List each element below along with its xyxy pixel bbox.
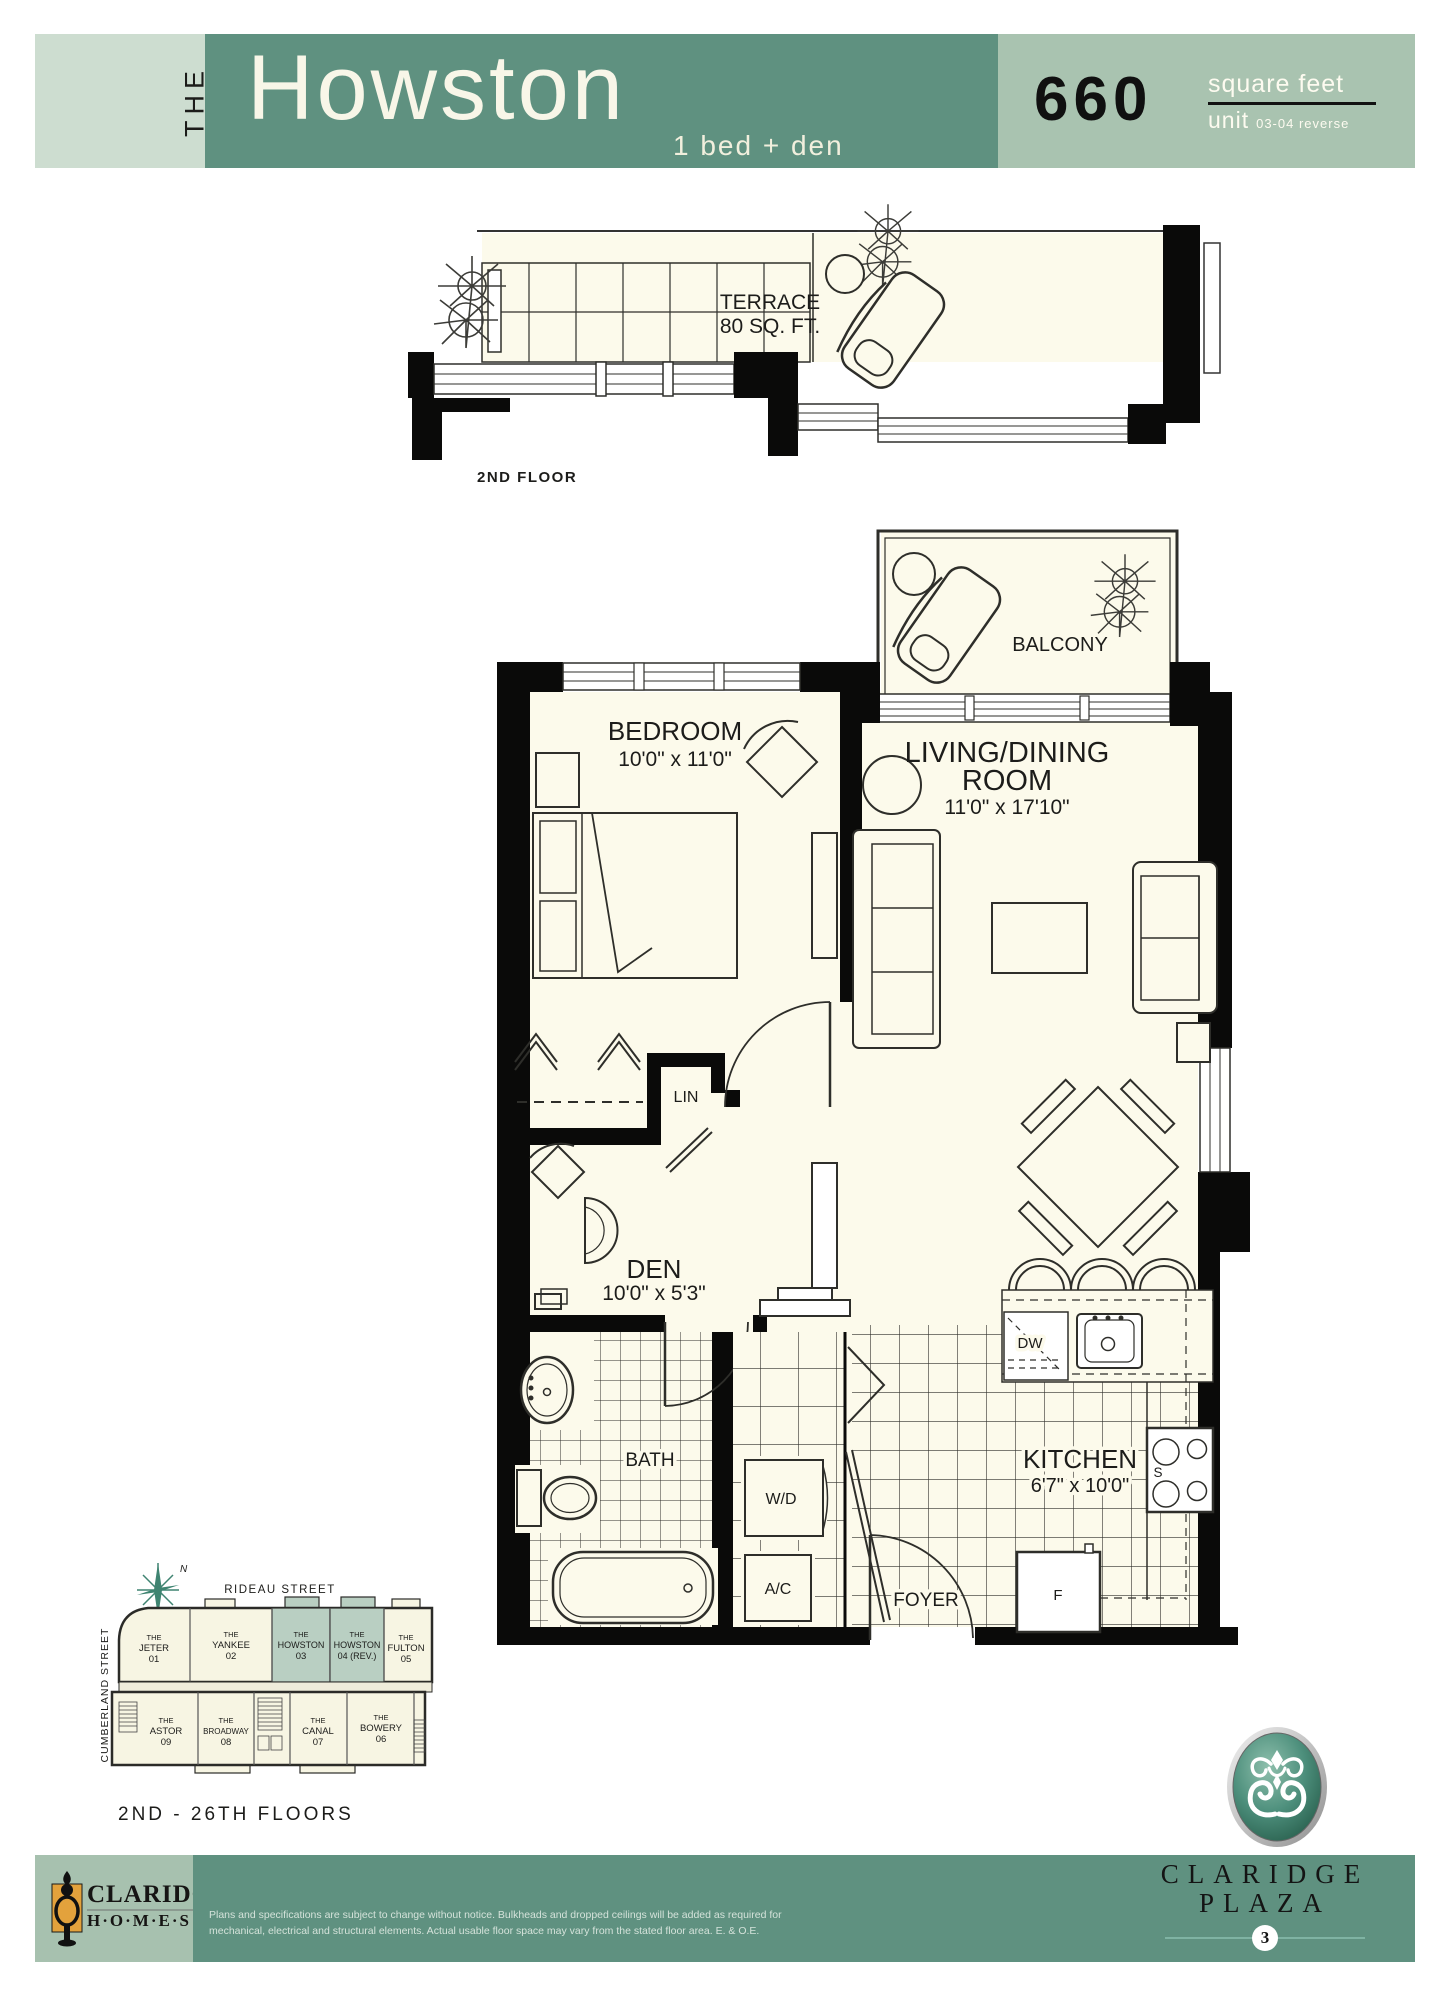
unit-yankee-name: YANKEE bbox=[212, 1640, 250, 1651]
washer-dryer-label: W/D bbox=[765, 1491, 796, 1508]
unit-fulton-name: FULTON bbox=[387, 1643, 424, 1654]
terrace-table bbox=[826, 255, 864, 293]
unit-broadway-num: 08 bbox=[221, 1737, 232, 1748]
kitchen-dims: 6'7" x 10'0" bbox=[1031, 1475, 1130, 1497]
unit-broadway-name: BROADWAY bbox=[203, 1727, 249, 1736]
project-number-rule: 3 bbox=[1137, 1925, 1393, 1951]
bedroom-window bbox=[563, 663, 800, 690]
coffee-table bbox=[992, 903, 1087, 973]
footer-dark-band: Plans and specifications are subject to … bbox=[193, 1855, 1415, 1962]
bedroom-dims: 10'0" x 11'0" bbox=[618, 748, 732, 771]
unit-astor-prefix: THE bbox=[159, 1716, 174, 1725]
unit-fulton-num: 05 bbox=[401, 1654, 412, 1665]
unit-howston3-prefix: THE bbox=[294, 1630, 309, 1639]
den-dims: 10'0" x 5'3" bbox=[602, 1282, 706, 1305]
terrace-plan: TERRACE 80 SQ. FT. 2ND FLOOR bbox=[408, 204, 1220, 486]
unit-bowery-num: 06 bbox=[376, 1734, 387, 1745]
claridge-homes-logo-icon bbox=[49, 1869, 85, 1954]
terrace-area-label: 80 SQ. FT. bbox=[720, 315, 820, 338]
project-wordmark: CLARIDGE PLAZA 3 bbox=[1137, 1859, 1393, 1951]
balcony-label: BALCONY bbox=[1012, 634, 1108, 656]
linen-label: LIN bbox=[674, 1089, 699, 1106]
den-label: DEN bbox=[627, 1254, 682, 1284]
unit-jeter-prefix: THE bbox=[147, 1633, 162, 1642]
unit-howston3-name: HOWSTON bbox=[278, 1640, 325, 1650]
unit-bowery-prefix: THE bbox=[374, 1713, 389, 1722]
disclaimer-line-1: Plans and specifications are subject to … bbox=[209, 1907, 782, 1923]
unit-yankee-num: 02 bbox=[226, 1651, 237, 1662]
unit-canal-prefix: THE bbox=[311, 1716, 326, 1725]
terrace-railing bbox=[408, 352, 1166, 460]
unit-fulton-prefix: THE bbox=[399, 1633, 414, 1642]
keyplan-corridor bbox=[119, 1682, 432, 1692]
floorplan-sheet: THE Howston 1 bed + den 660 square feet … bbox=[0, 0, 1448, 1999]
ac-label: A/C bbox=[765, 1581, 792, 1598]
bathtub bbox=[553, 1552, 713, 1623]
key-plan: N RIDEAU STREET CUMBERLAND STREET bbox=[99, 1563, 432, 1825]
laundry-room: W/D A/C bbox=[733, 1332, 845, 1627]
project-name-line2: PLAZA bbox=[1137, 1888, 1393, 1919]
claridge-plaza-logo-icon bbox=[1227, 1727, 1327, 1847]
disclaimer-line-2: mechanical, electrical and structural el… bbox=[209, 1923, 782, 1939]
unit-howston3-num: 03 bbox=[296, 1651, 307, 1662]
unit-howston4-prefix: THE bbox=[350, 1630, 365, 1639]
unit-jeter-num: 01 bbox=[149, 1654, 160, 1665]
unit-astor-num: 09 bbox=[161, 1737, 172, 1748]
fridge-label: F bbox=[1053, 1587, 1062, 1604]
unit-yankee-prefix: THE bbox=[224, 1630, 239, 1639]
terrace-label: TERRACE bbox=[720, 291, 820, 314]
builder-block: CLARIDGE H·O·M·E·S bbox=[35, 1855, 193, 1962]
street-top-label: RIDEAU STREET bbox=[224, 1584, 336, 1596]
unit-canal-num: 07 bbox=[313, 1737, 324, 1748]
disclaimer-text: Plans and specifications are subject to … bbox=[209, 1907, 782, 1939]
balcony-table bbox=[893, 553, 935, 595]
unit-howston4-num: 04 (REV.) bbox=[338, 1651, 377, 1661]
living-window bbox=[1200, 1048, 1230, 1172]
plan-drawing: TERRACE 80 SQ. FT. 2ND FLOOR bbox=[0, 0, 1448, 1999]
foyer-label: FOYER bbox=[893, 1590, 958, 1611]
sofa bbox=[853, 830, 940, 1048]
bath-sink bbox=[521, 1357, 573, 1423]
side-table-square bbox=[1177, 1023, 1210, 1062]
bedroom-label: BEDROOM bbox=[608, 716, 742, 746]
project-name-line1: CLARIDGE bbox=[1137, 1859, 1393, 1890]
project-number-badge: 3 bbox=[1252, 1925, 1278, 1951]
unit-canal-name: CANAL bbox=[302, 1726, 334, 1737]
stove-label: S bbox=[1153, 1465, 1162, 1480]
street-left-label: CUMBERLAND STREET bbox=[99, 1628, 111, 1763]
footer-bar: CLARIDGE H·O·M·E·S Plans and specificati… bbox=[35, 1855, 1415, 1962]
main-floor-plan: BALCONY bbox=[497, 531, 1250, 1645]
unit-astor-name: ASTOR bbox=[150, 1726, 183, 1737]
living-dims: 11'0" x 17'10" bbox=[944, 796, 1069, 819]
living-label-2: ROOM bbox=[962, 765, 1052, 797]
unit-bowery-name: BOWERY bbox=[360, 1723, 403, 1734]
unit-howston4-name: HOWSTON bbox=[334, 1640, 381, 1650]
terrace-pillar bbox=[1163, 225, 1200, 423]
kitchen-label: KITCHEN bbox=[1023, 1444, 1137, 1474]
north-label: N bbox=[180, 1564, 188, 1575]
bath-label: BATH bbox=[625, 1450, 674, 1471]
dishwasher-label: DW bbox=[1018, 1335, 1044, 1352]
unit-broadway-prefix: THE bbox=[219, 1716, 234, 1725]
toilet-tank bbox=[517, 1470, 541, 1526]
second-floor-caption: 2ND FLOOR bbox=[477, 469, 577, 486]
keyplan-caption: 2ND - 26TH FLOORS bbox=[118, 1804, 354, 1825]
unit-jeter-name: JETER bbox=[139, 1643, 169, 1654]
terrace-floor bbox=[482, 233, 1163, 362]
